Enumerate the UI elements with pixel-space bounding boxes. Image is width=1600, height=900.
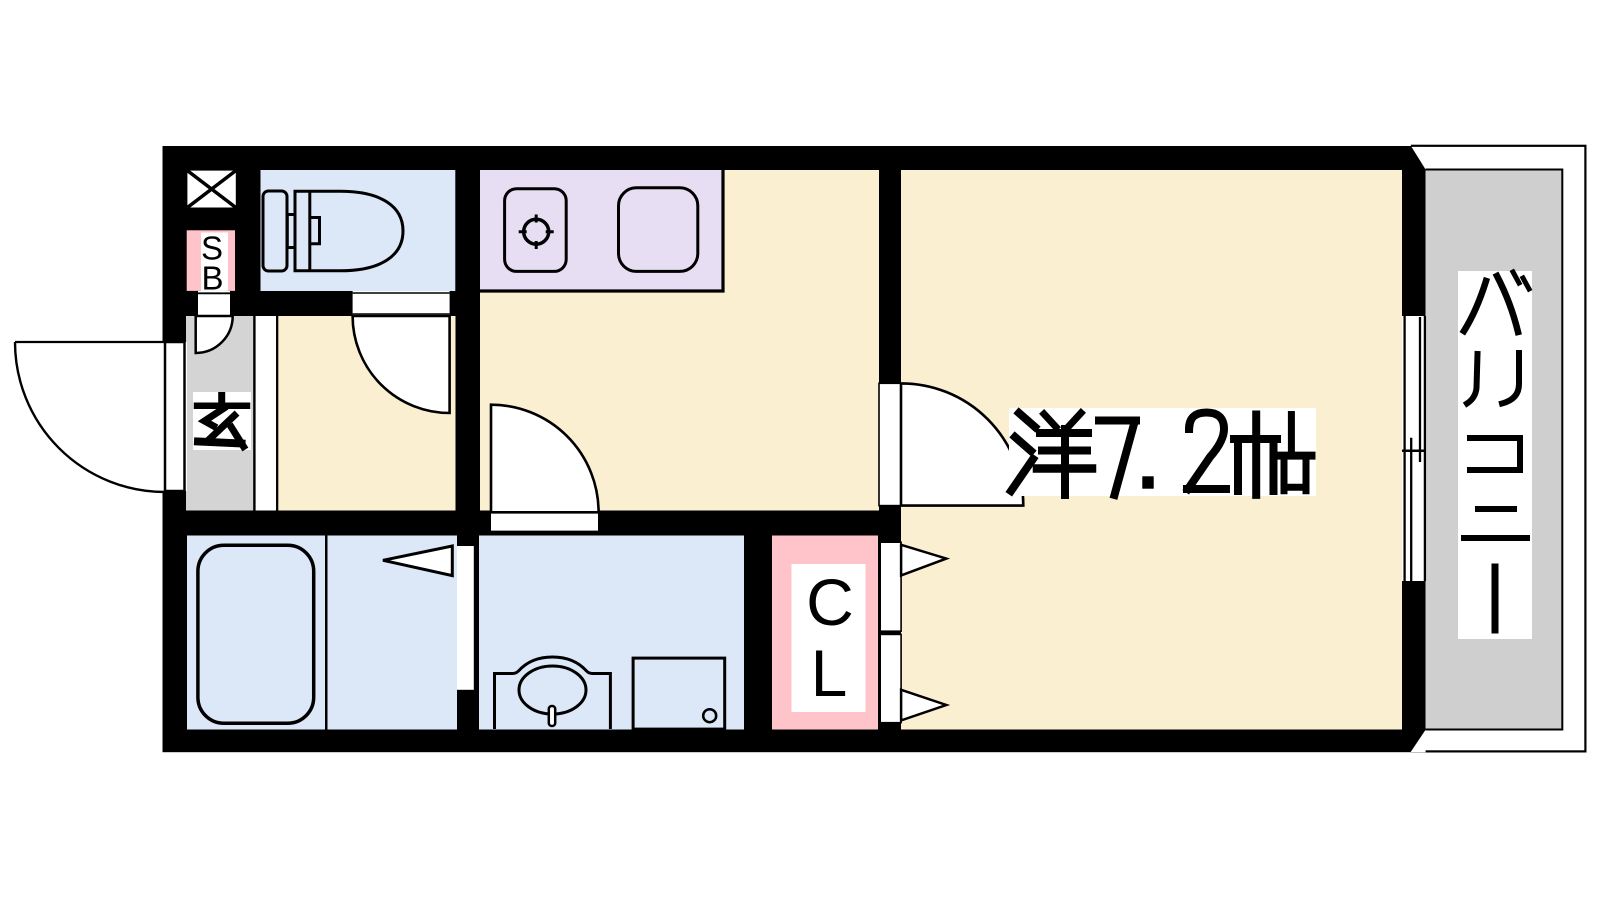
svg-text:L: L — [811, 636, 848, 710]
svg-text:C: C — [806, 565, 854, 639]
